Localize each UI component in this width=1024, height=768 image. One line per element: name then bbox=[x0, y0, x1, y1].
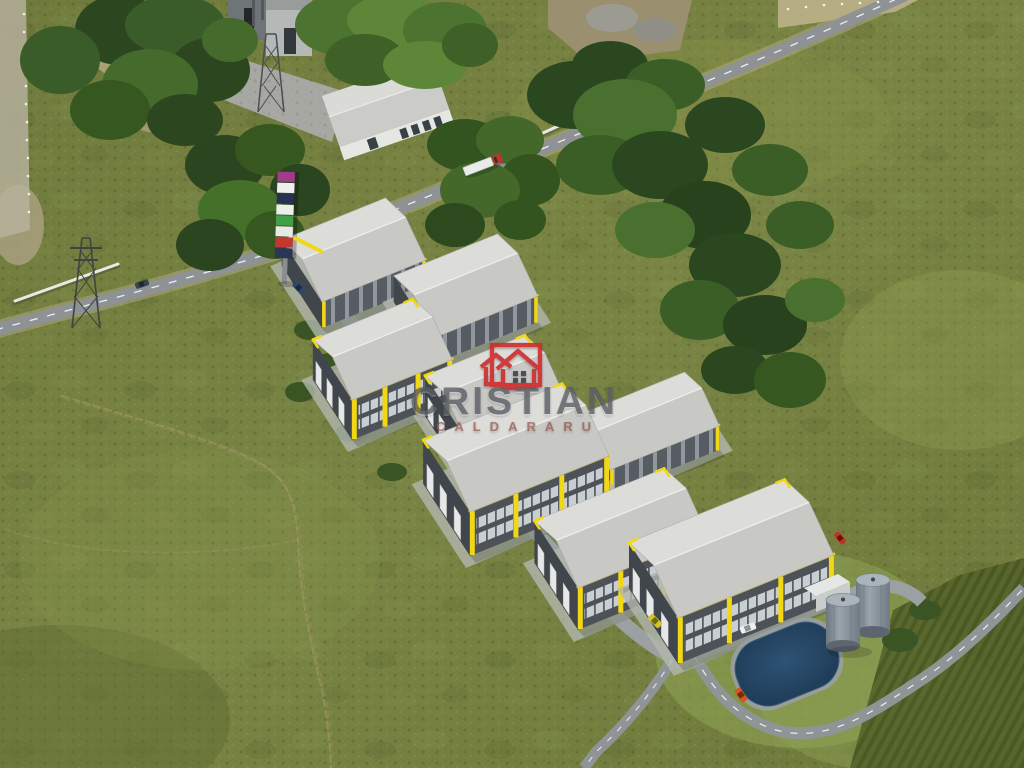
chimney bbox=[252, 0, 255, 26]
yellow-pillar bbox=[383, 387, 388, 427]
totem-panel bbox=[275, 248, 293, 259]
yellow-pillar bbox=[578, 587, 583, 629]
chimney bbox=[261, 0, 264, 20]
brand-name: CRISTIAN bbox=[410, 380, 618, 423]
yellow-pillar bbox=[513, 493, 518, 537]
totem-panel bbox=[275, 226, 293, 237]
yellow-pillar bbox=[678, 617, 683, 663]
silo bbox=[826, 594, 860, 653]
brand-subname: CALDARARU bbox=[436, 419, 600, 434]
totem-panel bbox=[275, 237, 293, 248]
scene-svg: CRISTIAN CRISTIAN CALDARARU bbox=[0, 0, 1024, 768]
yellow-pillar bbox=[778, 576, 783, 622]
aerial-render-image: CRISTIAN CRISTIAN CALDARARU bbox=[0, 0, 1024, 768]
totem-panel bbox=[277, 183, 295, 194]
totem-panel bbox=[277, 193, 295, 204]
yellow-pillar bbox=[322, 301, 326, 327]
silo bbox=[856, 574, 890, 639]
yellow-pillar bbox=[352, 399, 357, 439]
totem-panel bbox=[276, 215, 294, 226]
left-lane-strip bbox=[0, 0, 30, 238]
yellow-pillar bbox=[470, 511, 475, 555]
totem-panel bbox=[277, 172, 295, 183]
yellow-pillar bbox=[534, 297, 538, 323]
yellow-pillar bbox=[727, 597, 732, 643]
totem-panel bbox=[276, 204, 294, 215]
totem-pole bbox=[282, 258, 288, 284]
yellow-pillar bbox=[716, 427, 720, 451]
